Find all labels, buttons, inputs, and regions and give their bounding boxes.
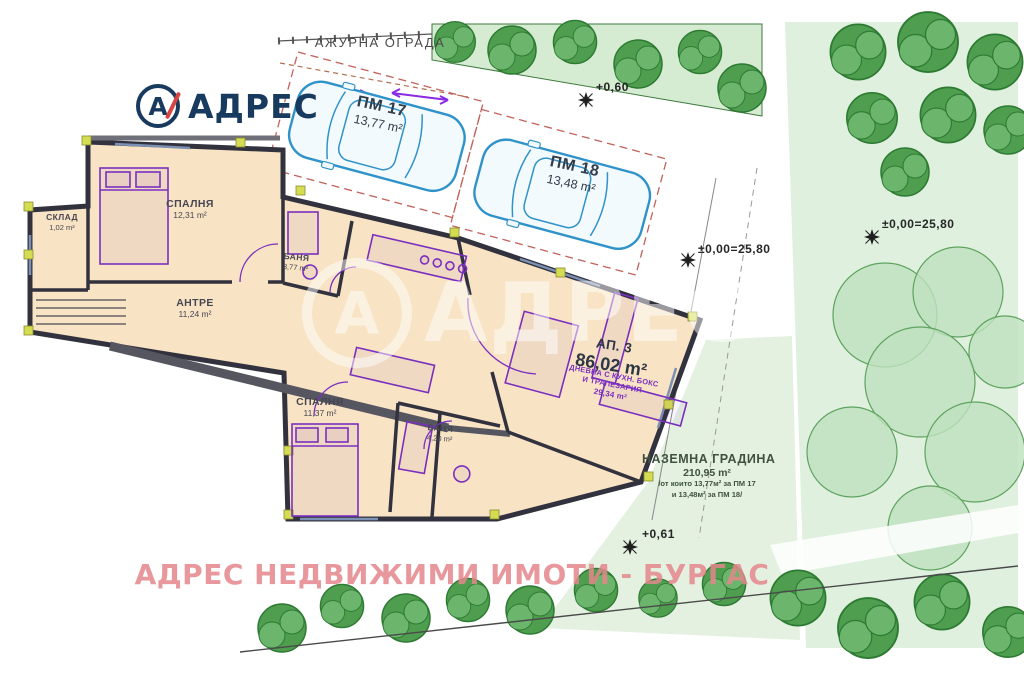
elevation-star-icon	[622, 539, 638, 555]
room-label-bedroom-1: СПАЛНЯ 12,31 m²	[142, 198, 238, 221]
floor-plan-canvas: А АДРЕС АЖУРНА ОГРАДА ПМ 17 13,77 m² ПМ …	[0, 0, 1024, 682]
logo-wordmark: АДРЕС	[188, 87, 319, 126]
elevation-star-icon	[864, 229, 880, 245]
room-label-bedroom-2: СПАЛНЯ 11,37 m²	[282, 396, 358, 419]
car-icon	[468, 129, 657, 259]
room-label-hallway: АНТРЕ 11,24 m²	[150, 297, 240, 320]
logo-letter: А	[148, 94, 167, 119]
elevation-star-icon	[578, 92, 594, 108]
elevation-label: ±0,00=25,80	[882, 218, 954, 232]
footer-watermark: АДРЕС НЕДВИЖИМИ ИМОТИ - БУРГАС	[112, 558, 792, 591]
elevation-star-icon	[680, 252, 696, 268]
brand-logo-icon: А	[136, 84, 180, 128]
elevation-label: ±0,00=25,80	[698, 243, 770, 257]
elevation-label: +0,60	[596, 81, 629, 95]
garden-label: НАЗЕМНА ГРАДИНА 210,95 m² /от които 13,7…	[642, 452, 772, 500]
fence-label: АЖУРНА ОГРАДА	[305, 36, 455, 51]
elevation-label: +0,61	[642, 528, 675, 542]
brand-logo: А АДРЕС	[136, 84, 319, 128]
room-label-storage: СКЛАД 1,02 m²	[34, 213, 90, 232]
